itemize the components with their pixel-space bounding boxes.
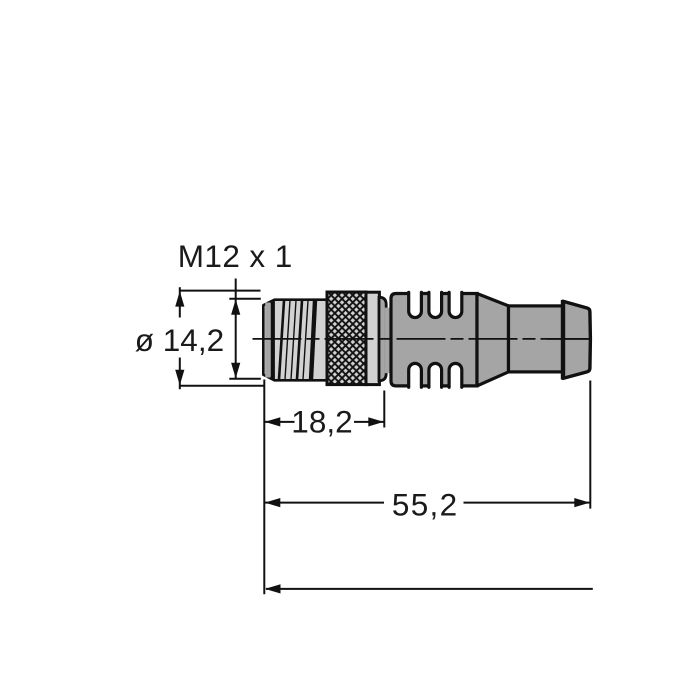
svg-text:55,2: 55,2 [392,487,459,523]
svg-text:ø 14,2: ø 14,2 [135,322,224,358]
svg-text:M12 x 1: M12 x 1 [178,238,293,274]
svg-text:18,2: 18,2 [291,404,352,440]
